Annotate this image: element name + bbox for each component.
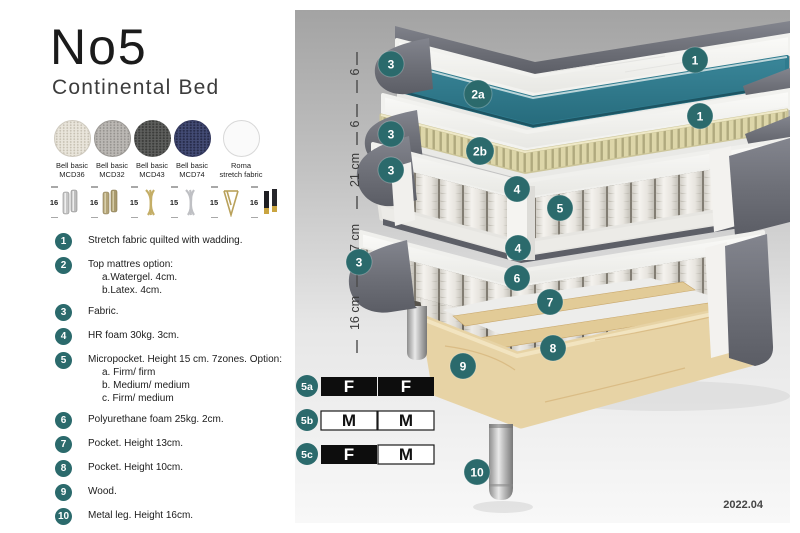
badge-1: 1 [697, 110, 704, 124]
firmness-cell: M [399, 445, 413, 464]
legend-item-line: Stretch fabric quilted with wadding. [88, 234, 243, 247]
badge-3: 3 [388, 58, 395, 72]
measure-dash [171, 217, 178, 219]
fabric-swatch-circle [94, 120, 131, 157]
legend-item: 2Top mattres option:a.Watergel. 4cm.b.La… [55, 258, 305, 297]
fabric-swatch-circle [134, 120, 171, 157]
legend-item: 9Wood. [55, 485, 305, 501]
dimension-label: 16 cm [348, 296, 362, 330]
legend-item-line: Pocket. Height 10cm. [88, 461, 183, 474]
leg-height-value: 15 [210, 198, 218, 207]
firmness-cell: F [344, 377, 354, 396]
fabric-swatch: Bell basicMCD36 [52, 120, 92, 179]
twist-gold-leg-icon [140, 187, 162, 217]
fabric-swatch-circle [223, 120, 260, 157]
badge-10: 10 [470, 466, 484, 480]
leg-height-measure: 16 [250, 186, 258, 218]
legend-item-line: Fabric. [88, 305, 119, 318]
leg-option: 16 [86, 186, 126, 218]
dimension-label: 6 [348, 120, 362, 127]
legend-number-badge: 7 [55, 436, 72, 453]
legend-item: 8Pocket. Height 10cm. [55, 461, 305, 477]
hairpin-gold-leg-icon [220, 187, 242, 217]
measure-dash [211, 217, 218, 219]
fabric-swatch: Romastretch fabric [217, 120, 265, 179]
measure-dash [251, 186, 258, 188]
bed-cutaway-illustration: 6 6 21 cm 27 cm 16 cm 1 3 2a 3 2b 1 4 3 … [295, 10, 790, 523]
firmness-row-id: 5c [301, 449, 313, 461]
firmness-row-id: 5b [301, 415, 313, 427]
legend-item-text: HR foam 30kg. 3cm. [88, 329, 179, 342]
legend-number-badge: 6 [55, 412, 72, 429]
legend-item: 3Fabric. [55, 305, 305, 321]
measure-dash [51, 217, 58, 219]
leg-option: 15 [166, 186, 206, 218]
badge-7: 7 [547, 296, 554, 310]
legend-item-line: Wood. [88, 485, 117, 498]
legend-item-subline: c. Firm/ medium [102, 392, 282, 405]
twist-silver-leg-icon [180, 187, 202, 217]
legend-item-line: Micropocket. Height 15 cm. 7zones. Optio… [88, 353, 282, 366]
legend-item: 6Polyurethane foam 25kg. 2cm. [55, 413, 305, 429]
badge-2a: 2a [471, 88, 485, 102]
leg-option: 15 [206, 186, 246, 218]
legend-item: 5Micropocket. Height 15 cm. 7zones. Opti… [55, 353, 305, 405]
legend-number-badge: 8 [55, 460, 72, 477]
fabric-swatch-label: Bell basicMCD32 [92, 161, 132, 179]
legend-item-text: Stretch fabric quilted with wadding. [88, 234, 243, 247]
firmness-row-5c: 5c F M [296, 443, 434, 465]
legend-item-text: Pocket. Height 10cm. [88, 461, 183, 474]
legend-item: 4HR foam 30kg. 3cm. [55, 329, 305, 345]
badge-9: 9 [460, 360, 467, 374]
badge-4: 4 [515, 242, 522, 256]
cylinder-silver-leg-icon [60, 187, 82, 217]
firmness-row-id: 5a [301, 381, 313, 393]
firmness-cell: F [344, 445, 354, 464]
legend-number-badge: 1 [55, 233, 72, 250]
firmness-cell: M [399, 411, 413, 430]
legend-item-line: Polyurethane foam 25kg. 2cm. [88, 413, 224, 426]
firmness-row-5b: 5b M M [296, 409, 434, 431]
fabric-swatch: Bell basicMCD74 [172, 120, 212, 179]
fabric-swatch-label: Bell basicMCD43 [132, 161, 172, 179]
legend-number-badge: 9 [55, 484, 72, 501]
leg-height-value: 15 [170, 198, 178, 207]
legend-item-text: Metal leg. Height 16cm. [88, 509, 193, 522]
fabric-swatch-row: Bell basicMCD36Bell basicMCD32Bell basic… [52, 120, 265, 179]
legend-number-badge: 5 [55, 352, 72, 369]
legend-item-text: Fabric. [88, 305, 119, 318]
fabric-swatch-circle [174, 120, 211, 157]
badge-5: 5 [557, 202, 564, 216]
leg-height-measure: 16 [50, 186, 58, 218]
measure-dash [91, 186, 98, 188]
legend-item-subline: a. Firm/ firm [102, 366, 282, 379]
legend-item-text: Micropocket. Height 15 cm. 7zones. Optio… [88, 353, 282, 405]
legend-item-line: HR foam 30kg. 3cm. [88, 329, 179, 342]
measure-dash [171, 186, 178, 188]
measure-dash [51, 186, 58, 188]
legend-number-badge: 2 [55, 257, 72, 274]
legend-item-line: Pocket. Height 13cm. [88, 437, 183, 450]
leg-height-value: 15 [130, 198, 138, 207]
leg-height-value: 16 [50, 198, 58, 207]
legend-item: 1Stretch fabric quilted with wadding. [55, 234, 305, 250]
legend-list: 1Stretch fabric quilted with wadding.2To… [55, 234, 305, 533]
firmness-cell: F [401, 377, 411, 396]
leg-option: 15 [126, 186, 166, 218]
legend-item-text: Wood. [88, 485, 117, 498]
measure-dash [131, 186, 138, 188]
badge-2b: 2b [473, 145, 487, 159]
legend-item-text: Polyurethane foam 25kg. 2cm. [88, 413, 224, 426]
bed-diagram-panel: 6 6 21 cm 27 cm 16 cm 1 3 2a 3 2b 1 4 3 … [295, 10, 790, 523]
leg-height-measure: 15 [170, 186, 178, 218]
legend-item-line: Top mattres option: [88, 258, 177, 271]
leg-option: 16 [46, 186, 86, 218]
legend-item-text: Top mattres option:a.Watergel. 4cm.b.Lat… [88, 258, 177, 297]
leg-height-value: 16 [250, 198, 258, 207]
badge-3: 3 [356, 256, 363, 270]
legend-item: 7Pocket. Height 13cm. [55, 437, 305, 453]
version-label: 2022.04 [723, 499, 764, 511]
badge-3: 3 [388, 128, 395, 142]
legend-number-badge: 10 [55, 508, 72, 525]
fabric-swatch-label: Bell basicMCD36 [52, 161, 92, 179]
measure-dash [131, 217, 138, 219]
leg-height-value: 16 [90, 198, 98, 207]
badge-8: 8 [550, 342, 557, 356]
fabric-swatch-circle [54, 120, 91, 157]
block-black-gold-leg-icon [260, 187, 282, 217]
badge-3: 3 [388, 164, 395, 178]
firmness-cell: M [342, 411, 356, 430]
cylinder-brass-leg-icon [100, 187, 122, 217]
legend-item: 10Metal leg. Height 16cm. [55, 509, 305, 525]
leg-options-row: 161615151516 [46, 186, 286, 218]
dimension-label: 6 [348, 68, 362, 75]
measure-dash [211, 186, 218, 188]
page-subtitle: Continental Bed [52, 76, 219, 100]
dimension-label: 21 cm [348, 153, 362, 187]
page-title: No5 [50, 18, 148, 76]
leg-height-measure: 15 [210, 186, 218, 218]
fabric-swatch-label: Romastretch fabric [217, 161, 265, 179]
legend-item-subline: a.Watergel. 4cm. [102, 271, 177, 284]
legend-number-badge: 3 [55, 304, 72, 321]
leg-option: 16 [246, 186, 286, 218]
leg-height-measure: 15 [130, 186, 138, 218]
legend-item-line: Metal leg. Height 16cm. [88, 509, 193, 522]
fabric-swatch-label: Bell basicMCD74 [172, 161, 212, 179]
fabric-swatch: Bell basicMCD43 [132, 120, 172, 179]
legend-item-text: Pocket. Height 13cm. [88, 437, 183, 450]
leg-height-measure: 16 [90, 186, 98, 218]
badge-4: 4 [514, 183, 521, 197]
badge-6: 6 [514, 272, 521, 286]
legend-item-subline: b.Latex. 4cm. [102, 284, 177, 297]
measure-dash [251, 217, 258, 219]
legend-number-badge: 4 [55, 328, 72, 345]
measure-dash [91, 217, 98, 219]
badge-1: 1 [692, 54, 699, 68]
fabric-swatch: Bell basicMCD32 [92, 120, 132, 179]
firmness-table: 5a F F 5b M M 5c F M [296, 375, 434, 465]
firmness-row-5a: 5a F F [296, 375, 434, 397]
legend-item-subline: b. Medium/ medium [102, 379, 282, 392]
